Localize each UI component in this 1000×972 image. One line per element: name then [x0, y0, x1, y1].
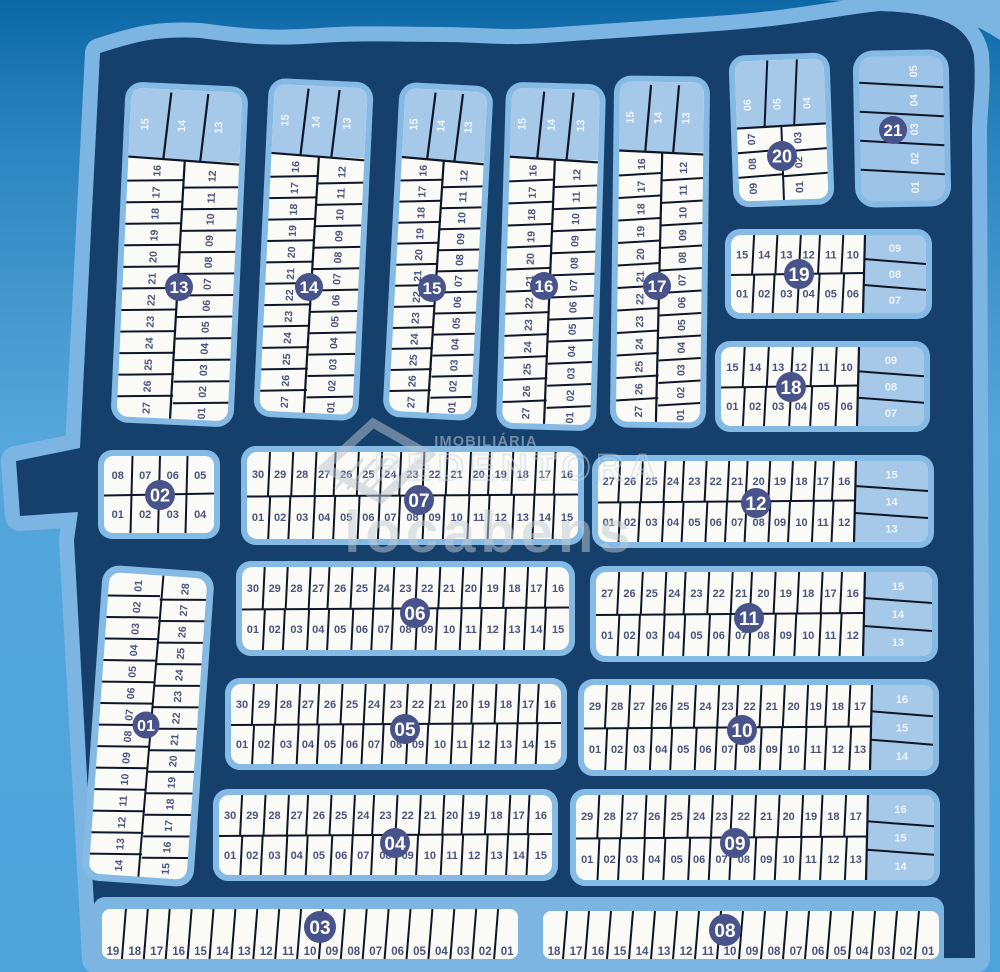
svg-text:11: 11	[739, 609, 760, 630]
svg-text:23: 23	[690, 588, 702, 600]
svg-text:06: 06	[391, 946, 404, 958]
svg-text:02: 02	[326, 380, 339, 392]
svg-text:21: 21	[766, 701, 778, 713]
svg-text:01: 01	[589, 744, 601, 756]
svg-text:07: 07	[885, 408, 897, 420]
svg-text:07: 07	[331, 273, 344, 285]
svg-text:22: 22	[710, 476, 722, 488]
svg-text:30: 30	[252, 469, 264, 481]
svg-text:02: 02	[758, 289, 770, 301]
svg-text:09: 09	[120, 752, 133, 765]
svg-text:26: 26	[406, 375, 419, 387]
svg-text:07: 07	[139, 470, 151, 482]
svg-text:14: 14	[435, 119, 448, 133]
svg-text:05: 05	[690, 630, 702, 642]
svg-text:26: 26	[633, 383, 645, 395]
svg-text:07: 07	[889, 295, 901, 307]
svg-text:17: 17	[150, 946, 163, 958]
svg-text:27: 27	[291, 810, 303, 822]
svg-text:15: 15	[194, 946, 207, 958]
svg-text:06: 06	[840, 401, 852, 413]
svg-text:23: 23	[634, 316, 646, 328]
svg-text:02: 02	[447, 380, 460, 392]
svg-text:09: 09	[746, 946, 759, 958]
svg-text:20: 20	[413, 249, 426, 261]
svg-text:07: 07	[369, 946, 382, 958]
svg-text:15: 15	[726, 362, 738, 374]
svg-text:19: 19	[287, 225, 300, 237]
svg-text:10: 10	[119, 773, 132, 786]
svg-text:26: 26	[623, 588, 635, 600]
svg-text:21: 21	[146, 272, 159, 284]
svg-text:13: 13	[885, 524, 897, 536]
svg-text:20: 20	[465, 583, 477, 595]
svg-text:24: 24	[357, 810, 370, 822]
svg-text:06: 06	[710, 517, 722, 529]
svg-text:29: 29	[269, 583, 281, 595]
svg-text:24: 24	[693, 811, 706, 823]
svg-text:09: 09	[760, 854, 772, 866]
svg-text:25: 25	[143, 359, 156, 371]
svg-text:28: 28	[290, 583, 302, 595]
svg-text:01: 01	[501, 946, 514, 958]
svg-text:02: 02	[131, 601, 144, 614]
svg-text:04: 04	[328, 337, 341, 349]
svg-text:16: 16	[535, 810, 547, 822]
svg-text:05: 05	[688, 517, 700, 529]
svg-text:06: 06	[699, 744, 711, 756]
svg-text:06: 06	[404, 604, 425, 625]
svg-text:24: 24	[282, 332, 295, 344]
svg-text:06: 06	[335, 850, 347, 862]
svg-text:16: 16	[838, 476, 850, 488]
svg-text:03: 03	[792, 132, 804, 144]
svg-text:14: 14	[653, 111, 665, 124]
svg-text:23: 23	[172, 690, 185, 703]
svg-text:17: 17	[163, 820, 176, 833]
svg-text:12: 12	[478, 739, 490, 751]
svg-text:22: 22	[634, 293, 646, 305]
svg-text:02: 02	[611, 744, 623, 756]
svg-text:04: 04	[199, 342, 212, 354]
svg-text:06: 06	[812, 946, 825, 958]
svg-text:20: 20	[147, 251, 160, 263]
svg-text:26: 26	[648, 811, 660, 823]
svg-text:18: 18	[164, 798, 177, 811]
svg-text:01: 01	[236, 739, 248, 751]
svg-text:08: 08	[752, 517, 764, 529]
svg-text:09: 09	[724, 834, 745, 855]
svg-text:20: 20	[752, 476, 764, 488]
svg-text:10: 10	[840, 362, 852, 374]
svg-text:28: 28	[268, 810, 280, 822]
svg-text:04: 04	[128, 644, 141, 657]
svg-text:09: 09	[766, 744, 778, 756]
svg-text:26: 26	[521, 385, 533, 397]
svg-text:25: 25	[646, 588, 658, 600]
svg-text:29: 29	[246, 810, 258, 822]
svg-text:01: 01	[137, 718, 155, 735]
svg-text:25: 25	[671, 811, 683, 823]
svg-text:19: 19	[414, 228, 427, 240]
svg-text:06: 06	[742, 99, 754, 111]
svg-text:18: 18	[780, 378, 801, 399]
svg-text:19: 19	[107, 946, 120, 958]
svg-text:09: 09	[455, 233, 468, 245]
svg-text:06: 06	[201, 299, 214, 311]
svg-text:05: 05	[194, 470, 206, 482]
svg-text:14: 14	[892, 609, 905, 621]
svg-text:15: 15	[896, 723, 908, 735]
svg-text:11: 11	[456, 739, 468, 751]
svg-text:23: 23	[399, 583, 411, 595]
svg-text:17: 17	[648, 277, 667, 296]
svg-text:04: 04	[312, 624, 325, 636]
svg-text:05: 05	[908, 65, 920, 77]
svg-text:19: 19	[468, 810, 480, 822]
svg-text:07: 07	[715, 854, 727, 866]
svg-text:01: 01	[564, 412, 576, 424]
svg-text:03: 03	[129, 623, 142, 636]
svg-text:12: 12	[838, 517, 850, 529]
svg-text:13: 13	[170, 278, 189, 297]
svg-text:09: 09	[774, 517, 786, 529]
svg-text:02: 02	[909, 152, 921, 164]
svg-text:07: 07	[357, 850, 369, 862]
svg-text:14: 14	[113, 859, 126, 872]
svg-text:08: 08	[203, 256, 216, 268]
svg-text:16: 16	[592, 946, 605, 958]
svg-text:13: 13	[658, 946, 671, 958]
svg-text:03: 03	[290, 624, 302, 636]
svg-text:14: 14	[310, 115, 323, 129]
svg-text:18: 18	[827, 811, 839, 823]
svg-text:25: 25	[346, 699, 358, 711]
svg-text:23: 23	[379, 810, 391, 822]
svg-text:26: 26	[280, 374, 293, 386]
svg-text:01: 01	[325, 401, 338, 413]
svg-text:11: 11	[702, 946, 715, 958]
svg-text:10: 10	[731, 721, 752, 742]
svg-text:03: 03	[675, 364, 687, 376]
svg-text:22: 22	[738, 811, 750, 823]
svg-text:13: 13	[463, 121, 476, 134]
svg-text:22: 22	[170, 712, 183, 725]
svg-text:07: 07	[568, 279, 580, 291]
svg-text:10: 10	[783, 854, 795, 866]
svg-text:12: 12	[571, 169, 583, 181]
svg-text:17: 17	[522, 699, 534, 711]
svg-text:03: 03	[327, 358, 340, 370]
svg-text:02: 02	[479, 946, 492, 958]
svg-text:24: 24	[378, 583, 391, 595]
svg-text:14: 14	[216, 946, 229, 958]
svg-text:15: 15	[535, 850, 547, 862]
svg-text:14: 14	[513, 850, 526, 862]
svg-text:20: 20	[788, 701, 800, 713]
svg-text:04: 04	[194, 509, 207, 521]
svg-text:01: 01	[196, 407, 209, 419]
svg-text:12: 12	[680, 946, 693, 958]
svg-text:16: 16	[636, 158, 648, 170]
svg-text:12: 12	[802, 250, 814, 262]
svg-text:17: 17	[636, 181, 648, 193]
svg-text:18: 18	[500, 699, 512, 711]
svg-text:04: 04	[908, 93, 920, 106]
svg-text:08: 08	[747, 158, 759, 170]
svg-text:13: 13	[213, 121, 226, 134]
svg-text:01: 01	[581, 854, 593, 866]
svg-text:12: 12	[487, 624, 499, 636]
svg-text:16: 16	[544, 699, 556, 711]
svg-text:19: 19	[635, 226, 647, 238]
svg-text:07: 07	[721, 744, 733, 756]
svg-text:09: 09	[326, 946, 339, 958]
svg-text:28: 28	[611, 701, 623, 713]
svg-text:17: 17	[513, 810, 525, 822]
svg-text:06: 06	[847, 289, 859, 301]
svg-text:17: 17	[850, 811, 862, 823]
svg-text:01: 01	[922, 946, 935, 958]
svg-text:08: 08	[889, 269, 901, 281]
svg-text:21: 21	[169, 733, 182, 746]
svg-text:15: 15	[885, 470, 897, 482]
svg-text:16: 16	[894, 804, 906, 816]
svg-text:09: 09	[421, 624, 433, 636]
svg-text:06: 06	[693, 854, 705, 866]
svg-text:21: 21	[434, 699, 446, 711]
svg-text:16: 16	[151, 165, 164, 177]
svg-text:24: 24	[409, 333, 422, 345]
svg-text:05: 05	[334, 624, 346, 636]
svg-text:01: 01	[132, 580, 145, 593]
svg-text:03: 03	[646, 630, 658, 642]
svg-text:11: 11	[335, 187, 348, 199]
svg-text:locabens: locabens	[344, 500, 635, 565]
svg-text:08: 08	[347, 946, 360, 958]
svg-text:04: 04	[566, 345, 578, 357]
svg-text:17: 17	[570, 946, 583, 958]
svg-text:28: 28	[296, 469, 308, 481]
svg-text:01: 01	[794, 181, 806, 193]
svg-text:01: 01	[112, 509, 124, 521]
svg-text:23: 23	[390, 699, 402, 711]
svg-text:13: 13	[238, 946, 251, 958]
svg-text:30: 30	[236, 699, 248, 711]
svg-text:04: 04	[801, 97, 813, 109]
svg-text:03: 03	[296, 512, 308, 524]
svg-text:22: 22	[523, 297, 535, 309]
svg-text:08: 08	[743, 744, 755, 756]
svg-text:25: 25	[356, 583, 368, 595]
svg-text:15: 15	[408, 118, 421, 131]
svg-text:04: 04	[648, 854, 661, 866]
svg-text:14: 14	[546, 118, 558, 131]
svg-text:06: 06	[167, 470, 179, 482]
svg-text:12: 12	[260, 946, 273, 958]
svg-text:02: 02	[150, 486, 170, 506]
svg-text:22: 22	[145, 294, 158, 306]
svg-text:09: 09	[780, 630, 792, 642]
svg-text:09: 09	[569, 235, 581, 247]
svg-text:10: 10	[788, 744, 800, 756]
svg-text:05: 05	[677, 744, 689, 756]
svg-text:09: 09	[889, 243, 901, 255]
svg-text:07: 07	[378, 624, 390, 636]
svg-text:REDENTORA: REDENTORA	[374, 447, 662, 488]
svg-text:14: 14	[749, 362, 762, 374]
svg-text:24: 24	[368, 699, 381, 711]
svg-text:19: 19	[780, 588, 792, 600]
svg-text:26: 26	[142, 380, 155, 392]
svg-text:13: 13	[341, 117, 354, 130]
svg-text:23: 23	[523, 319, 535, 331]
svg-text:05: 05	[313, 850, 325, 862]
svg-text:03: 03	[167, 509, 179, 521]
svg-text:04: 04	[856, 946, 869, 958]
svg-text:21: 21	[731, 476, 743, 488]
svg-text:04: 04	[676, 342, 688, 354]
svg-text:17: 17	[150, 186, 163, 198]
svg-text:03: 03	[645, 517, 657, 529]
svg-text:11: 11	[805, 854, 817, 866]
svg-text:29: 29	[258, 699, 270, 711]
svg-text:13: 13	[681, 112, 693, 124]
svg-text:06: 06	[330, 294, 343, 306]
svg-text:18: 18	[795, 476, 807, 488]
svg-text:09: 09	[677, 229, 689, 241]
svg-text:18: 18	[490, 810, 502, 822]
svg-text:05: 05	[825, 289, 837, 301]
svg-text:19: 19	[478, 699, 490, 711]
svg-text:27: 27	[633, 701, 645, 713]
svg-text:18: 18	[288, 203, 301, 215]
svg-text:24: 24	[667, 476, 680, 488]
svg-text:12: 12	[468, 850, 480, 862]
svg-text:09: 09	[748, 182, 760, 194]
svg-text:03: 03	[198, 364, 211, 376]
svg-text:27: 27	[312, 583, 324, 595]
svg-text:02: 02	[197, 386, 210, 398]
svg-text:11: 11	[825, 630, 837, 642]
svg-text:16: 16	[290, 161, 303, 173]
svg-text:16: 16	[535, 277, 554, 296]
svg-text:14: 14	[522, 739, 535, 751]
svg-text:04: 04	[449, 338, 462, 350]
svg-text:09: 09	[204, 235, 217, 247]
svg-text:03: 03	[280, 739, 292, 751]
svg-text:09: 09	[333, 230, 346, 242]
svg-text:05: 05	[676, 319, 688, 331]
svg-text:15: 15	[625, 111, 637, 123]
svg-text:02: 02	[623, 630, 635, 642]
svg-text:02: 02	[565, 389, 577, 401]
svg-text:27: 27	[141, 402, 154, 414]
svg-text:18: 18	[149, 208, 162, 220]
svg-text:20: 20	[783, 811, 795, 823]
svg-text:06: 06	[346, 739, 358, 751]
svg-text:27: 27	[178, 604, 191, 617]
svg-text:18: 18	[802, 588, 814, 600]
svg-text:28: 28	[179, 583, 192, 596]
svg-text:02: 02	[749, 401, 761, 413]
svg-text:07: 07	[202, 278, 215, 290]
svg-text:05: 05	[671, 854, 683, 866]
svg-text:26: 26	[334, 583, 346, 595]
svg-text:18: 18	[832, 701, 844, 713]
svg-text:13: 13	[854, 744, 866, 756]
svg-text:25: 25	[521, 363, 533, 375]
svg-text:18: 18	[415, 207, 428, 219]
svg-text:16: 16	[552, 583, 564, 595]
svg-text:03: 03	[633, 744, 645, 756]
svg-text:21: 21	[285, 268, 298, 280]
svg-text:18: 18	[548, 946, 561, 958]
svg-text:12: 12	[847, 630, 859, 642]
svg-text:27: 27	[520, 407, 532, 419]
svg-text:08: 08	[332, 251, 345, 263]
svg-text:03: 03	[457, 946, 470, 958]
svg-text:13: 13	[114, 838, 127, 851]
svg-text:05: 05	[771, 98, 783, 110]
svg-text:02: 02	[139, 509, 151, 521]
svg-text:11: 11	[282, 946, 295, 958]
svg-text:22: 22	[743, 701, 755, 713]
svg-text:05: 05	[200, 321, 213, 333]
svg-text:12: 12	[832, 744, 844, 756]
svg-text:20: 20	[757, 588, 769, 600]
svg-text:14: 14	[885, 497, 898, 509]
svg-text:20: 20	[167, 755, 180, 768]
svg-text:24: 24	[143, 337, 156, 349]
svg-text:29: 29	[581, 811, 593, 823]
svg-text:29: 29	[589, 701, 601, 713]
svg-text:23: 23	[144, 316, 157, 328]
svg-text:07: 07	[368, 739, 380, 751]
svg-text:15: 15	[423, 279, 442, 298]
svg-text:10: 10	[570, 213, 582, 225]
svg-text:14: 14	[176, 119, 189, 133]
svg-text:21: 21	[424, 810, 436, 822]
svg-text:29: 29	[274, 469, 286, 481]
svg-text:02: 02	[603, 854, 615, 866]
svg-text:13: 13	[508, 624, 520, 636]
svg-text:05: 05	[567, 323, 579, 335]
svg-text:14: 14	[896, 751, 909, 763]
svg-text:17: 17	[289, 182, 302, 194]
svg-text:04: 04	[302, 739, 315, 751]
svg-text:20: 20	[456, 699, 468, 711]
svg-text:03: 03	[909, 123, 921, 135]
svg-text:05: 05	[394, 720, 416, 741]
svg-text:19: 19	[487, 583, 499, 595]
svg-text:03: 03	[780, 289, 792, 301]
svg-text:24: 24	[173, 669, 186, 682]
svg-text:27: 27	[626, 811, 638, 823]
svg-text:07: 07	[746, 133, 758, 145]
svg-text:10: 10	[334, 209, 347, 221]
svg-text:10: 10	[443, 624, 455, 636]
svg-text:10: 10	[304, 946, 317, 958]
svg-text:15: 15	[552, 624, 564, 636]
svg-text:13: 13	[490, 850, 502, 862]
svg-text:15: 15	[279, 114, 292, 127]
svg-text:11: 11	[465, 624, 477, 636]
svg-text:08: 08	[885, 382, 897, 394]
svg-text:11: 11	[825, 250, 837, 262]
svg-text:05: 05	[329, 316, 342, 328]
svg-text:10: 10	[795, 517, 807, 529]
